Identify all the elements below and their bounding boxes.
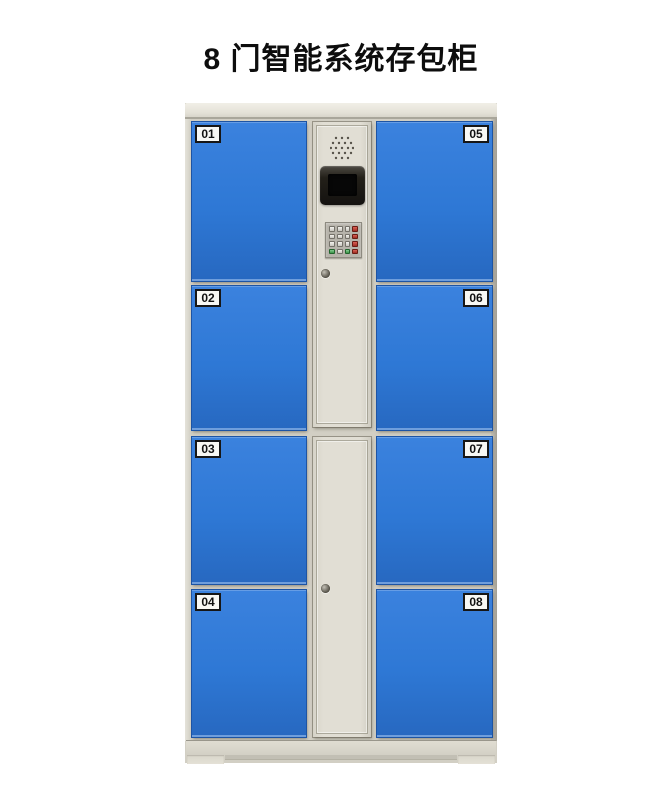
- locker-cabinet: 01 02 03 04 05 06 07 08: [185, 103, 497, 763]
- keypad-button: [329, 241, 335, 247]
- kick-plate: [186, 740, 496, 755]
- keypad-button: [337, 241, 343, 247]
- locker-door-02: 02: [192, 286, 306, 430]
- keyhole-lock: [321, 269, 330, 278]
- locker-door-03: 03: [192, 437, 306, 584]
- locker-door-05: 05: [377, 122, 492, 281]
- keypad-button: [337, 226, 343, 232]
- locker-door-04: 04: [192, 590, 306, 737]
- keypad-button: [337, 234, 343, 240]
- display-screen-glass: [328, 174, 357, 196]
- cabinet-foot-right: [458, 755, 495, 764]
- door-number-label: 07: [463, 440, 489, 458]
- product-photo: 8 门智能系统存包柜 01 02 03 04 05 06 07 08: [0, 0, 650, 790]
- door-number-label: 02: [195, 289, 221, 307]
- keypad-button: [352, 234, 358, 240]
- keypad: [325, 222, 362, 258]
- door-number-label: 05: [463, 125, 489, 143]
- door-number-label: 03: [195, 440, 221, 458]
- control-panel: [313, 122, 371, 427]
- keypad-button: [352, 226, 358, 232]
- keypad-button: [337, 249, 343, 255]
- door-number-label: 01: [195, 125, 221, 143]
- cabinet-left-edge: [185, 119, 192, 741]
- locker-door-07: 07: [377, 437, 492, 584]
- locker-door-01: 01: [192, 122, 306, 281]
- locker-door-06: 06: [377, 286, 492, 430]
- keypad-button: [345, 249, 351, 255]
- keypad-button: [345, 226, 351, 232]
- keyhole-lock: [321, 584, 330, 593]
- keypad-button: [352, 249, 358, 255]
- lower-center-panel: [313, 437, 371, 737]
- cabinet-foot-left: [187, 755, 224, 764]
- keypad-button: [345, 234, 351, 240]
- base-recess: [225, 755, 457, 759]
- speaker-icon: [330, 135, 354, 161]
- display-screen: [320, 166, 365, 205]
- door-number-label: 04: [195, 593, 221, 611]
- keypad-button: [329, 234, 335, 240]
- keypad-button: [352, 241, 358, 247]
- door-number-label: 08: [463, 593, 489, 611]
- locker-door-08: 08: [377, 590, 492, 737]
- door-number-label: 06: [463, 289, 489, 307]
- cabinet-top-panel: [185, 103, 497, 119]
- keypad-button: [329, 249, 335, 255]
- keypad-button: [345, 241, 351, 247]
- page-title: 8 门智能系统存包柜: [160, 34, 522, 78]
- keypad-button: [329, 226, 335, 232]
